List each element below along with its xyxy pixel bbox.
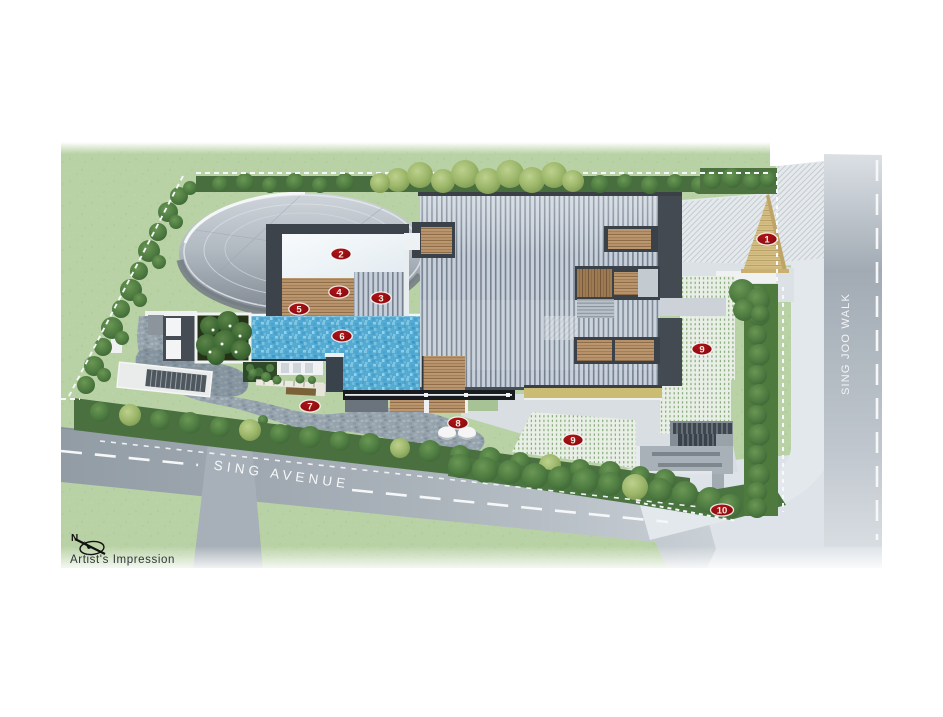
svg-text:9: 9 [699,344,704,355]
svg-text:1: 1 [764,234,770,245]
svg-text:5: 5 [296,304,302,315]
svg-text:N: N [71,533,78,544]
svg-text:9: 9 [570,435,575,446]
svg-text:2: 2 [338,249,343,260]
svg-text:SING JOO WALK: SING JOO WALK [840,293,852,395]
svg-text:7: 7 [307,401,312,412]
svg-text:10: 10 [717,505,728,516]
svg-text:8: 8 [455,418,460,429]
svg-text:6: 6 [339,331,344,342]
svg-text:4: 4 [336,287,342,298]
svg-text:Artist's Impression: Artist's Impression [70,554,175,566]
svg-text:3: 3 [378,293,383,304]
